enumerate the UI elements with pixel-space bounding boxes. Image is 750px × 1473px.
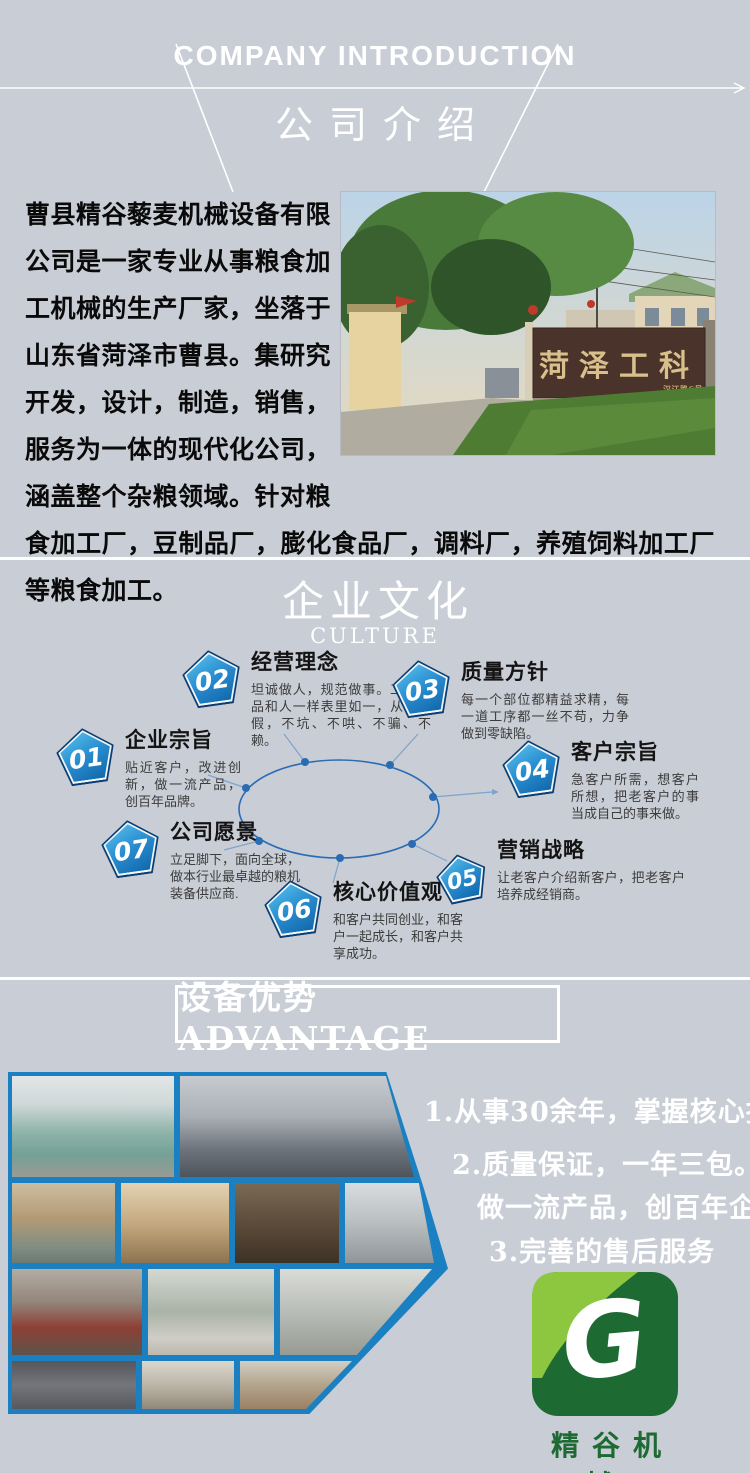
photo-gate-barrier	[485, 368, 519, 398]
culture-item-title: 公司愿景	[170, 820, 300, 846]
photo-collage	[8, 1072, 448, 1414]
collage-photo-group-photo	[12, 1361, 136, 1409]
pentagon-badge: 03	[389, 656, 454, 720]
company-introduction-page: COMPANY INTRODUCTION 公司介绍	[0, 0, 750, 1473]
pentagon-badge: 02	[179, 646, 244, 710]
advantage-point-1: 1.从事30余年，掌握核心技术，	[424, 1090, 750, 1129]
collage-photo-packed-goods	[240, 1361, 352, 1409]
header-cn-title: 公司介绍	[0, 94, 750, 149]
culture-item-desc: 和客户共同创业，和客户一起成长，和客户共享成功。	[333, 911, 463, 962]
culture-item-desc: 贴近客户，改进创新，做一流产品，创百年品牌。	[125, 759, 241, 810]
culture-item-07: 07 公司愿景 立足脚下，面向全球，做本行业最卓越的粮机装备供应商.	[102, 820, 332, 902]
badge-number: 04	[499, 736, 564, 800]
collage-photo-contract-signing	[235, 1183, 339, 1263]
logo-letter: G	[557, 1276, 653, 1405]
culture-item-desc: 立足脚下，面向全球，做本行业最卓越的粮机装备供应商.	[170, 851, 300, 902]
gate-sign-text: 菏泽工科	[539, 349, 699, 384]
culture-item-desc: 急客户所需，想客户所想，把老客户的事当成自己的事来做。	[571, 771, 699, 822]
badge-number: 07	[98, 816, 163, 880]
culture-item-desc: 每一个部位都精益求精，每一道工序都一丝不苟，力争做到零缺陷。	[461, 691, 629, 742]
culture-item-03: 03 质量方针 每一个部位都精益求精，每一道工序都一丝不苟，力争做到零缺陷。	[393, 660, 643, 742]
culture-item-title: 客户宗旨	[571, 740, 699, 766]
connector-arrow-icon	[492, 789, 499, 795]
pentagon-badge: 04	[499, 736, 564, 800]
company-gate-photo: 菏泽工科 汉江路6号	[341, 192, 715, 455]
brand-name: 精谷机械	[524, 1424, 688, 1473]
intro-section: 菏泽工科 汉江路6号 曹县精谷藜麦机械设备有限公司是一家专业从事粮食加工机械的生…	[25, 192, 715, 615]
advantage-point-3: 3.完善的售后服务	[489, 1230, 715, 1269]
pentagon-badge: 07	[98, 816, 163, 880]
collage-photo-meeting-sofa	[12, 1269, 142, 1355]
advantage-point-2: 2.质量保证，一年三包。	[452, 1143, 750, 1182]
collage-photo-document-review	[142, 1361, 234, 1409]
collage-photo-machine-inspection	[148, 1269, 274, 1355]
culture-item-title: 核心价值观	[333, 880, 463, 906]
culture-item-desc: 让老客户介绍新客户，把老客户培养成经销商。	[497, 869, 685, 903]
advantage-point-2b: 做一流产品，创百年企业	[477, 1186, 750, 1225]
collage-photo-workshop-machines	[12, 1076, 174, 1177]
culture-item-title: 营销战略	[497, 838, 685, 864]
brand-logo: G	[532, 1272, 678, 1421]
section-divider	[0, 557, 750, 560]
culture-cn-title: 企业文化	[0, 568, 750, 629]
advantage-banner-label: 设备优势 ADVANTAGE	[178, 988, 557, 1040]
badge-number: 01	[53, 724, 118, 788]
pentagon-badge: 01	[53, 724, 118, 788]
collage-photo-warehouse-boxes	[12, 1183, 115, 1263]
collage-photo-visitors	[345, 1183, 434, 1263]
culture-item-04: 04 客户宗旨 急客户所需，想客户所想，把老客户的事当成自己的事来做。	[503, 740, 743, 822]
advantage-banner: 设备优势 ADVANTAGE	[175, 985, 560, 1043]
header-en-title: COMPANY INTRODUCTION	[0, 40, 750, 72]
badge-number: 03	[389, 656, 454, 720]
collage-photo-factory-line	[121, 1183, 229, 1263]
photo-lantern	[528, 305, 538, 315]
badge-number: 02	[179, 646, 244, 710]
photo-gatehouse	[349, 312, 401, 410]
collage-photo-team-in-workshop	[180, 1076, 414, 1177]
collage-photo-clients-warehouse	[280, 1269, 440, 1355]
culture-item-title: 质量方针	[461, 660, 629, 686]
